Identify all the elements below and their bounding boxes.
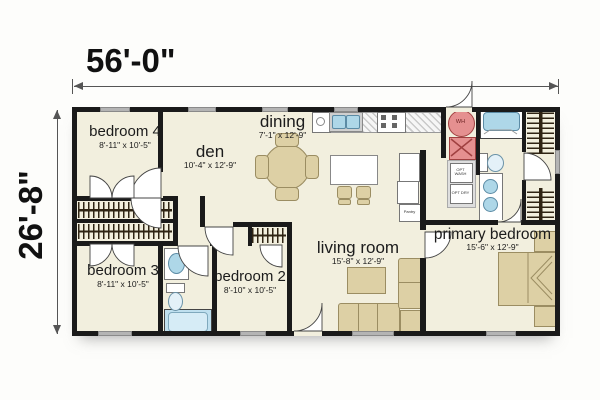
dining-table [264, 144, 310, 190]
window [334, 107, 358, 112]
room-dims-bedroom2: 8'-10" x 10'-5" [206, 286, 294, 295]
toilet-bowl [168, 292, 183, 311]
door-opening [294, 331, 322, 336]
door-opening [205, 222, 233, 227]
room-label-den: den [165, 143, 255, 161]
door-arc [446, 81, 472, 107]
depth-arrow-up [53, 110, 61, 119]
window [352, 331, 394, 336]
room-dims-den: 10'-4" x 12'-9" [155, 161, 265, 170]
stove-burner [392, 115, 397, 120]
vanity-sink [483, 179, 498, 194]
closet-hangers [527, 188, 554, 223]
bed [498, 252, 556, 306]
room-label-bedroom4: bedroom 4 [80, 124, 170, 140]
room-label-bedroom3: bedroom 3 [78, 263, 168, 279]
stove-burner [381, 115, 386, 120]
width-dimension-line [74, 86, 558, 87]
width-arrow-left [74, 82, 83, 90]
stool-back [338, 199, 351, 205]
dryer-optional-label: OPT DRY [450, 184, 471, 202]
window [100, 107, 130, 112]
pantry-label: Pantry [399, 204, 420, 220]
door-opening [420, 230, 426, 258]
cabinet [397, 181, 419, 204]
depth-arrow-down [53, 325, 61, 334]
room-dims-bedroom4: 8'-11" x 10'-5" [80, 141, 170, 150]
stove-burner [381, 123, 386, 128]
wall [248, 227, 252, 246]
vanity-sink [483, 197, 498, 212]
room-label-dining: dining [240, 113, 325, 131]
closet-hangers [527, 112, 554, 154]
nightstand [534, 306, 556, 327]
window [188, 107, 216, 112]
width-dim-tick-right [558, 79, 559, 94]
wall [476, 107, 480, 175]
room-dims-living: 15'-8" x 12'-9" [308, 257, 408, 266]
overall-depth-dimension: 26'-8" [12, 155, 52, 275]
room-dims-bedroom3: 8'-11" x 10'-5" [78, 280, 168, 289]
closet-hangers [252, 228, 286, 243]
wall [72, 219, 173, 223]
dining-chair [275, 187, 299, 201]
wall [173, 196, 178, 246]
side-table [400, 310, 422, 333]
bathtub-basin [168, 312, 208, 332]
kitchen-sink-bowl [346, 115, 360, 129]
furnace [449, 137, 476, 160]
room-dims-primary: 15'-6" x 12'-9" [430, 243, 555, 252]
door-opening [178, 241, 210, 246]
room-label-bedroom2: bedroom 2 [206, 269, 294, 285]
toilet-bowl [487, 154, 504, 172]
window [98, 331, 132, 336]
door-opening [446, 107, 472, 112]
refrigerator [399, 153, 420, 182]
stool-back [357, 199, 370, 205]
kitchen-sink-bowl [332, 115, 346, 129]
vanity-sink [168, 253, 185, 274]
room-dims-dining: 7'-1" x 12'-9" [240, 131, 325, 140]
washer-optional-label: OPT WASH [450, 163, 471, 181]
width-dim-tick-left [72, 79, 73, 94]
sofa [338, 303, 400, 334]
coffee-table [347, 267, 386, 294]
window [555, 150, 560, 174]
wall [426, 220, 555, 225]
bathtub-basin [483, 112, 520, 131]
window [486, 331, 516, 336]
wall [441, 107, 446, 158]
stool [356, 186, 371, 199]
closet-hangers [78, 202, 172, 218]
wall [72, 107, 560, 112]
width-arrow-right [549, 82, 558, 90]
kitchen-island [330, 155, 378, 185]
stool [337, 186, 352, 199]
dining-chair [305, 155, 319, 179]
window [240, 331, 266, 336]
floor-plan-canvas: 56'-0" 26'-8" Pantry WH OPT [0, 0, 600, 400]
wall [555, 107, 560, 336]
door-opening [498, 220, 521, 225]
stove-burner [392, 123, 397, 128]
room-label-living: living room [308, 239, 408, 257]
closet-hangers [78, 224, 172, 239]
depth-dimension-line [57, 110, 58, 334]
overall-width-dimension: 56'-0" [86, 42, 176, 80]
water-heater-label: WH [448, 110, 473, 135]
door-opening [158, 172, 163, 198]
door-opening [522, 152, 526, 180]
